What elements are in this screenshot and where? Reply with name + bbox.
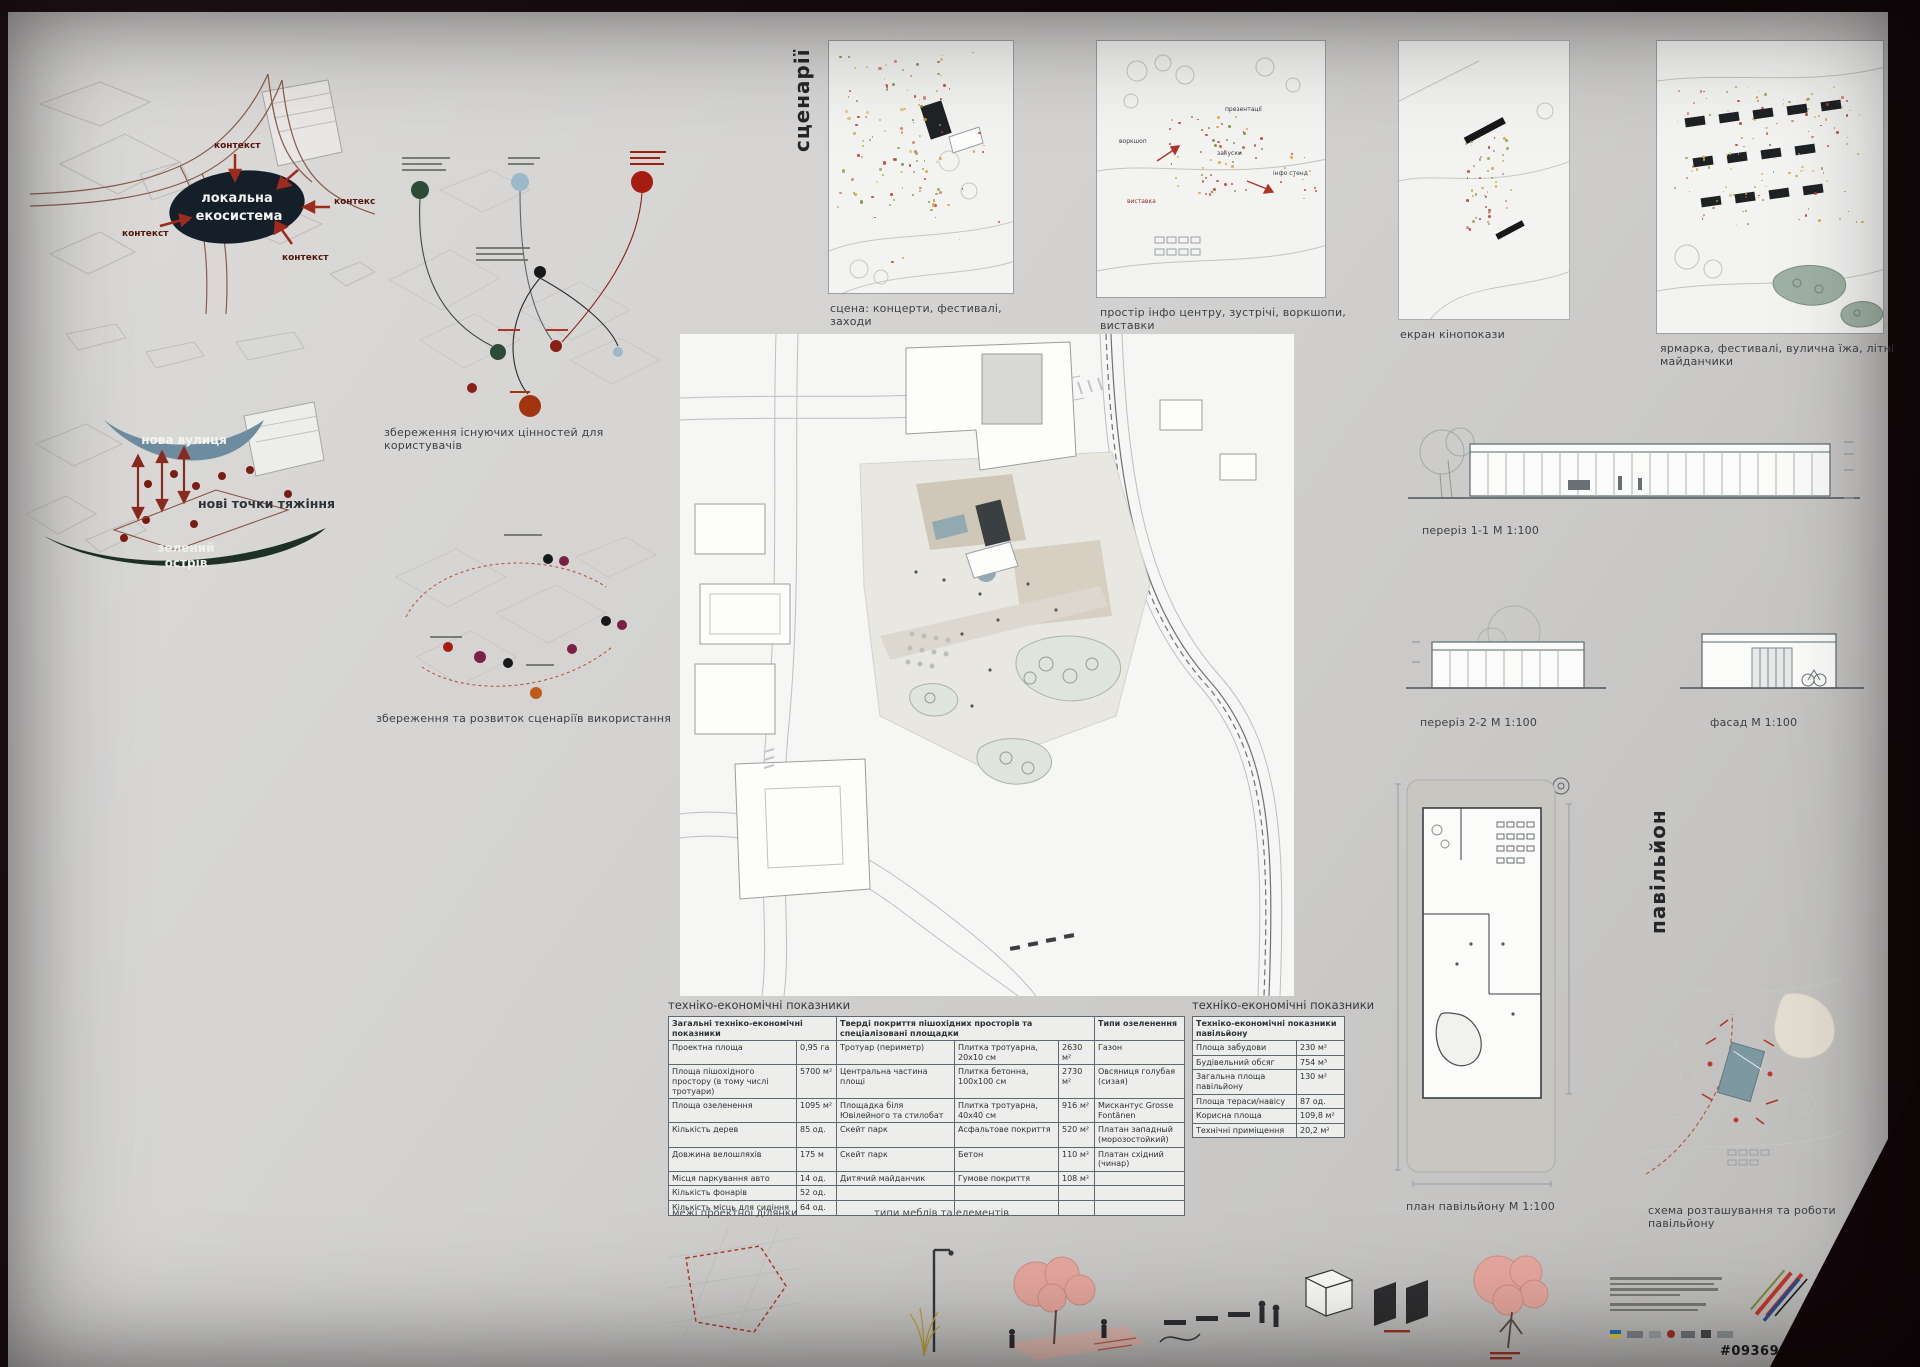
stage-icon xyxy=(920,100,951,139)
table-row: Загальна площа павільйону130 м² xyxy=(1193,1070,1345,1094)
table-cell: Проектна площа xyxy=(669,1041,797,1065)
partner-logo-icon xyxy=(1701,1330,1711,1338)
panel2-label-exhibition: виставка xyxy=(1127,199,1156,205)
table-cell xyxy=(1059,1186,1095,1201)
table-cell: Корисна площа xyxy=(1193,1109,1297,1124)
table-cell: Гумове покриття xyxy=(955,1171,1059,1186)
pavilion-box-icon xyxy=(1294,1264,1360,1326)
presentation-board: локальна екосистема контекст контекст ко… xyxy=(8,12,1888,1367)
partner-logos-row xyxy=(1610,1330,1733,1338)
table-cell: 110 м² xyxy=(1059,1147,1095,1171)
table-cell: Технічні приміщення xyxy=(1193,1123,1297,1138)
scenario-panel-fair xyxy=(1656,40,1884,334)
scenario-caption-3: екран кінопокази xyxy=(1400,328,1580,341)
grass-icon xyxy=(906,1304,942,1356)
table-cell: Газон xyxy=(1095,1041,1185,1065)
pavilion-plan-caption: план павільйону М 1:100 xyxy=(1406,1200,1555,1213)
scenario-caption-2: простір інфо центру, зустрічі, воркшопи,… xyxy=(1100,306,1360,332)
table-cell: Мискантус Grosse Fontänen xyxy=(1095,1099,1185,1123)
master-plan xyxy=(680,334,1294,996)
partner-logo-icon xyxy=(1649,1331,1661,1338)
table-cell: Площа забудови xyxy=(1193,1041,1297,1056)
scenario-caption-4: ярмарка, фестивалі, вулична їжа, літні м… xyxy=(1660,342,1900,368)
section-1-1-caption: переріз 1-1 М 1:100 xyxy=(1422,524,1539,537)
table-cell: Кількість дерев xyxy=(669,1123,797,1147)
table-cell: 109,8 м² xyxy=(1297,1109,1345,1124)
table-cell: 14 од. xyxy=(797,1171,837,1186)
info-panels-icon xyxy=(1366,1274,1436,1340)
panel2-label-infostand: інфо стенд xyxy=(1273,171,1308,177)
scenario-panel-info: воркшоп презентації закуски інфо стенд в… xyxy=(1096,40,1326,298)
partner-logo-icon xyxy=(1681,1331,1695,1338)
pavilion-indicators-table: Техніко-економічні показники павільйону … xyxy=(1192,1016,1345,1138)
table-cell: Площа пішохідного простору (в тому числі… xyxy=(669,1065,797,1099)
table-cell xyxy=(1095,1200,1185,1215)
scenarios-vertical-title: сценарії xyxy=(790,42,814,152)
scenario-panel-stage xyxy=(828,40,1014,294)
facade-caption: фасад М 1:100 xyxy=(1710,716,1797,729)
green-island-label-1: зелений xyxy=(157,541,214,555)
pavilion-table-title: техніко-економічні показники xyxy=(1192,998,1374,1012)
ecosystem-label-1: локальна xyxy=(201,191,273,206)
context-label-bottom: контекст xyxy=(282,253,329,263)
furniture-caption: типи меблів та елементів xyxy=(874,1208,1009,1219)
table-cell: 1095 м² xyxy=(797,1099,837,1123)
flag-logo-icon xyxy=(1610,1330,1621,1338)
table-cell: Плитка бетонна, 100х100 см xyxy=(955,1065,1059,1099)
boundary-caption: межі проектної ділянки xyxy=(672,1208,797,1219)
table-row: Будівельний обсяг754 м³ xyxy=(1193,1055,1345,1070)
partner-logo-icon xyxy=(1627,1331,1643,1338)
tree-icon xyxy=(1446,1246,1566,1362)
table-row: Корисна площа109,8 м² xyxy=(1193,1109,1345,1124)
table-row: Площа пішохідного простору (в тому числі… xyxy=(669,1065,1185,1099)
table-cell: Скейт парк xyxy=(837,1123,955,1147)
table-row: Місця паркування авто14 од.Дитячий майда… xyxy=(669,1171,1185,1186)
facade-drawing xyxy=(1680,598,1864,710)
table-cell xyxy=(1095,1171,1185,1186)
main-table-group1: Загальні техніко-економічні показники xyxy=(669,1017,837,1041)
pavilion-table-header: Техніко-економічні показники павільйону xyxy=(1193,1017,1345,1041)
table-cell: 20,2 м² xyxy=(1297,1123,1345,1138)
main-table-body: Проектна площа0,95 гаТротуар (периметр)П… xyxy=(669,1041,1185,1215)
usage-scenarios-diagram xyxy=(376,517,656,707)
table-row: Кількість фонарів52 од. xyxy=(669,1186,1185,1201)
ecosystem-label-2: екосистема xyxy=(196,209,283,224)
table-cell xyxy=(1095,1186,1185,1201)
table-cell: Дитячий майданчик xyxy=(837,1171,955,1186)
scenario-caption-1: сцена: концерти, фестивалі, заходи xyxy=(830,302,1030,328)
pavilion-vertical-title: павільйон xyxy=(1646,834,1670,934)
main-table-group3: Типи озеленення xyxy=(1095,1017,1185,1041)
table-cell: 520 м² xyxy=(1059,1123,1095,1147)
new-points-label: нові точки тяжіння xyxy=(198,496,335,511)
table-cell: 64 од. xyxy=(797,1200,837,1215)
competition-info-text xyxy=(1610,1274,1730,1314)
scenario-panel-cinema xyxy=(1398,40,1570,320)
table-cell: 5700 м² xyxy=(797,1065,837,1099)
context-label-left: контекст xyxy=(122,229,169,239)
table-cell xyxy=(955,1186,1059,1201)
table-row: Площа озеленення1095 м²Площадка біля Юві… xyxy=(669,1099,1185,1123)
site-boundary-thumbnail xyxy=(668,1228,800,1352)
table-cell: 130 м² xyxy=(1297,1070,1345,1094)
table-cell: Площа озеленення xyxy=(669,1099,797,1123)
table-cell xyxy=(1059,1200,1095,1215)
section-1-1-drawing xyxy=(1408,414,1860,516)
table-cell: Платан западный (морозостойкий) xyxy=(1095,1123,1185,1147)
table-cell: Плитка тротуарна, 40х40 см xyxy=(955,1099,1059,1123)
values-caption: збереження існуючих цінностей для корист… xyxy=(384,426,684,452)
table-row: Технічні приміщення20,2 м² xyxy=(1193,1123,1345,1138)
main-indicators-table: Загальні техніко-економічні показники Тв… xyxy=(668,1016,1185,1216)
pavilion-plan-drawing xyxy=(1393,764,1583,1194)
table-cell: 52 од. xyxy=(797,1186,837,1201)
table-cell: 87 од. xyxy=(1297,1094,1345,1109)
section-2-2-drawing xyxy=(1406,598,1606,710)
table-cell: Площа тераси/навісу xyxy=(1193,1094,1297,1109)
table-cell: Овсяниця голубая (сизая) xyxy=(1095,1065,1185,1099)
table-cell: Центральна частина площі xyxy=(837,1065,955,1099)
pavilion-scheme-drawing xyxy=(1636,954,1842,1194)
table-row: Кількість дерев85 од.Скейт паркАсфальтов… xyxy=(669,1123,1185,1147)
partner-logo-icon xyxy=(1667,1330,1675,1338)
board-photo: локальна екосистема контекст контекст ко… xyxy=(0,0,1920,1367)
table-cell: Будівельний обсяг xyxy=(1193,1055,1297,1070)
table-cell xyxy=(837,1186,955,1201)
table-cell: 108 м² xyxy=(1059,1171,1095,1186)
context-label-right: контекст xyxy=(334,197,375,207)
table-cell: Скейт парк xyxy=(837,1147,955,1171)
main-table-title: техніко-економічні показники xyxy=(668,998,850,1012)
table-cell: Бетон xyxy=(955,1147,1059,1171)
benches-people-icon xyxy=(1156,1280,1286,1350)
existing-values-diagram xyxy=(380,130,675,420)
section-2-2-caption: переріз 2-2 М 1:100 xyxy=(1420,716,1537,729)
table-cell: Місця паркування авто xyxy=(669,1171,797,1186)
table-cell: Площадка біля Ювілейного та стилобат xyxy=(837,1099,955,1123)
main-table-group2: Тверді покриття пішохідних просторів та … xyxy=(837,1017,1095,1041)
panel2-label-presentations: презентації xyxy=(1225,107,1262,113)
table-cell: 85 од. xyxy=(797,1123,837,1147)
table-cell: Асфальтове покриття xyxy=(955,1123,1059,1147)
table-row: Проектна площа0,95 гаТротуар (периметр)П… xyxy=(669,1041,1185,1065)
table-cell: Довжина велошляхів xyxy=(669,1147,797,1171)
table-row: Площа забудови230 м² xyxy=(1193,1041,1345,1056)
table-cell: 175 м xyxy=(797,1147,837,1171)
table-cell: 0,95 га xyxy=(797,1041,837,1065)
pavilion-axon-icon xyxy=(1717,1042,1764,1101)
table-row: Площа тераси/навісу87 од. xyxy=(1193,1094,1345,1109)
cinema-screen-icon xyxy=(1464,117,1506,144)
table-cell: Плитка тротуарна, 20х10 см xyxy=(955,1041,1059,1065)
local-ecosystem-diagram: локальна екосистема контекст контекст ко… xyxy=(30,74,375,314)
gravity-points-diagram: нова вулиця нові точки тяжіння зелений о… xyxy=(26,324,341,574)
table-cell: Кількість фонарів xyxy=(669,1186,797,1201)
panel2-label-workshop: воркшоп xyxy=(1119,139,1147,145)
table-cell: 754 м³ xyxy=(1297,1055,1345,1070)
context-label-top: контекст xyxy=(214,141,261,151)
tree-with-people-icon xyxy=(976,1248,1146,1364)
green-island-label-2: острів xyxy=(165,556,208,570)
table-cell: Платан східний (чинар) xyxy=(1095,1147,1185,1171)
new-street-label: нова вулиця xyxy=(141,433,227,447)
table-cell: 2630 м² xyxy=(1059,1041,1095,1065)
usage-caption: збереження та розвиток сценаріїв викорис… xyxy=(376,712,696,725)
table-cell: Тротуар (периметр) xyxy=(837,1041,955,1065)
table-cell: 916 м² xyxy=(1059,1099,1095,1123)
table-cell: 2730 м² xyxy=(1059,1065,1095,1099)
table-cell: Загальна площа павільйону xyxy=(1193,1070,1297,1094)
table-row: Довжина велошляхів175 мСкейт паркБетон11… xyxy=(669,1147,1185,1171)
panel2-label-snacks: закуски xyxy=(1217,151,1242,157)
pavilion-table-body: Площа забудови230 м²Будівельний обсяг754… xyxy=(1193,1041,1345,1138)
table-cell: 230 м² xyxy=(1297,1041,1345,1056)
partner-logo-icon xyxy=(1717,1331,1733,1338)
